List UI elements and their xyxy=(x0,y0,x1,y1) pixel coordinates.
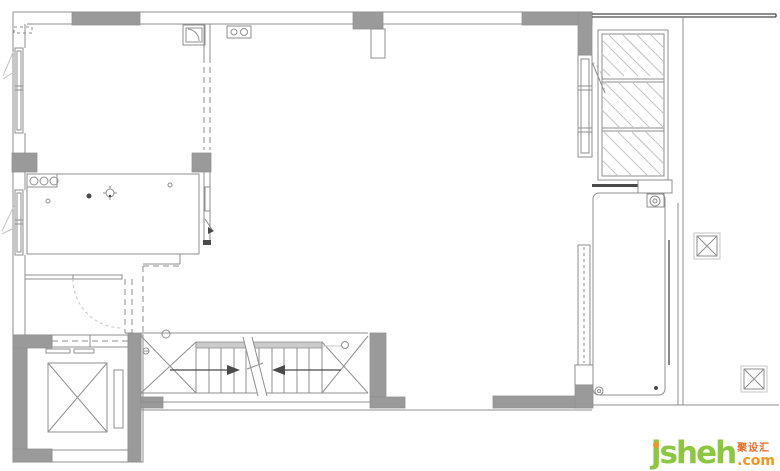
call-button xyxy=(143,348,149,354)
watermark-brand-text: jsheh xyxy=(651,440,735,468)
hatch-cell-1 xyxy=(602,34,664,76)
elevator-right-wall xyxy=(128,333,141,462)
newel-post xyxy=(162,330,170,338)
elevator-door-slit xyxy=(74,349,94,353)
structural-column xyxy=(741,366,767,392)
watermark-tld-text: .com xyxy=(737,454,775,468)
sink-fixture xyxy=(183,25,205,45)
wall-opening-dashed xyxy=(204,57,210,150)
left-room-counter xyxy=(27,174,199,254)
small-fitting xyxy=(46,199,50,203)
entry-door xyxy=(25,275,132,333)
point-fitting xyxy=(654,386,658,390)
top-right-wall xyxy=(592,14,776,17)
casement-swing xyxy=(3,50,14,79)
wall-block xyxy=(353,12,383,29)
duct-column xyxy=(371,29,385,58)
wall-pier xyxy=(12,153,37,172)
wall-block xyxy=(72,12,140,25)
casement-swing xyxy=(2,206,14,234)
door-leaf xyxy=(73,275,122,279)
small-fitting xyxy=(168,183,172,187)
washing-machine xyxy=(647,194,664,207)
wall-block xyxy=(575,385,593,408)
door-swing-arc xyxy=(73,279,122,328)
ceiling-light-symbol xyxy=(103,186,117,200)
stair-side-wall xyxy=(370,333,386,397)
floor-plan-canvas: jsheh 聚设汇 .com xyxy=(0,0,780,471)
point-fitting xyxy=(87,194,92,199)
window-right-upper xyxy=(578,55,592,157)
elevator-corner-block xyxy=(13,335,52,348)
landing-edge xyxy=(196,342,322,348)
watermark-logo: jsheh 聚设汇 .com xyxy=(651,440,775,469)
floor-plan-drawing xyxy=(0,0,780,471)
direction-arrow-up xyxy=(170,365,240,375)
bathroom xyxy=(593,193,665,395)
wall-foot xyxy=(370,397,405,408)
vent-detail xyxy=(14,27,32,33)
winder-left xyxy=(141,336,196,393)
counterweight xyxy=(114,370,123,428)
elevator-car-x xyxy=(48,363,107,432)
floor-drain xyxy=(595,387,603,395)
laundry-counter xyxy=(638,180,672,193)
wall-segment xyxy=(575,365,593,385)
wall-pier xyxy=(192,153,211,172)
elevator-corner-block xyxy=(13,449,52,462)
top-wall xyxy=(13,12,592,58)
wall-block xyxy=(578,12,592,55)
staircase xyxy=(141,330,368,402)
threshold xyxy=(592,184,638,187)
window-right-lower xyxy=(578,245,590,365)
elevator-left-wall xyxy=(13,335,27,462)
two-burner-hob xyxy=(227,26,251,38)
left-room-lower-wall xyxy=(143,254,180,333)
newel-post xyxy=(342,342,349,349)
structural-column xyxy=(694,233,720,259)
interior-wall-stub xyxy=(192,24,214,245)
wall-niche xyxy=(205,187,210,211)
watermark-j-dot xyxy=(653,442,659,448)
elevator-door-slit xyxy=(46,349,70,353)
direction-arrow-down xyxy=(272,365,341,375)
winder-right xyxy=(322,336,368,393)
wardrobe-hatched xyxy=(598,30,668,180)
right-wing xyxy=(575,17,779,408)
door-opening-dashed xyxy=(125,279,132,333)
wall-end-cap xyxy=(203,240,211,245)
hatch-cell-3 xyxy=(602,132,664,176)
hatch-cell-2 xyxy=(602,82,664,128)
